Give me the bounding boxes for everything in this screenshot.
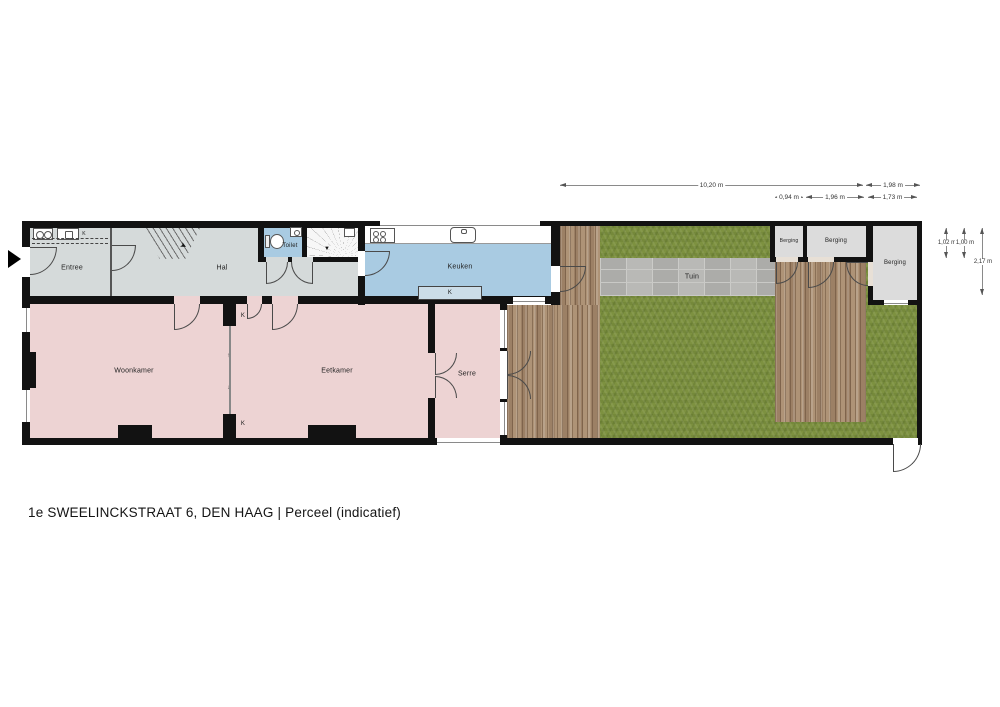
opening-entry [22, 247, 30, 277]
label-entree: Entree [61, 265, 83, 272]
label-serre: Serre [458, 371, 476, 378]
dimension-vertical-2: 1,00 m [964, 228, 965, 258]
label-berging-middle: Berging [825, 238, 847, 244]
dimension-label: 1,96 m [823, 194, 847, 201]
label-closet-ensuite-top: K [241, 313, 245, 319]
wall-toilet-left [258, 221, 264, 262]
wall-berging-divider [803, 226, 807, 257]
dimension-label: 1,73 m [881, 194, 905, 201]
entrance-arrow-marker [8, 250, 21, 268]
opening-eetkamer-serre [428, 353, 435, 398]
plan-title: 1e SWEELINCKSTRAAT 6, DEN HAAG | Perceel… [28, 505, 401, 520]
wall-berging-left-outer [770, 221, 775, 262]
opening-hal-eetkamer-2 [272, 296, 298, 304]
ensuite-closet-top-wall [223, 304, 236, 326]
dashed-overhang-line [32, 238, 108, 244]
ensuite-sliding-doors [229, 326, 231, 414]
dimension-berging-right-width: 1,73 m [868, 197, 917, 198]
door-garden-gate [893, 444, 921, 472]
window-berging-right [884, 300, 908, 305]
dimension-vertical-1: 1,02 m [946, 228, 947, 258]
dimension-label: 10,20 m [698, 182, 726, 189]
opening-hal-woonkamer [174, 296, 200, 304]
label-closet-keuken: K [448, 290, 452, 296]
dimension-berging-left-width: 0,94 m [775, 197, 803, 198]
window-woonkamer-1 [22, 308, 30, 332]
floorplan-canvas: ➤ ▼ ↑ ↓ Entree Hal Toilet Keuken [0, 0, 1000, 707]
toilet-sink-icon [290, 227, 302, 237]
ensuite-closet-bottom-wall [223, 414, 236, 438]
window-woonkamer-2 [22, 390, 30, 422]
wall-toilet-right [302, 226, 307, 257]
window-keuken-south [513, 297, 545, 304]
chimney-woonkamer-left [22, 352, 36, 388]
opening-hal-eetkamer-1 [247, 296, 262, 304]
stove-icon [370, 228, 395, 243]
opening-serre-deck [500, 351, 507, 399]
dimension-berging-middle-width: 1,96 m [806, 197, 864, 198]
label-berging-right: Berging [884, 260, 906, 266]
label-tuin: Tuin [685, 274, 699, 281]
wall-right-keuken [551, 221, 560, 305]
dimension-garden-length: 10,20 m [560, 185, 863, 186]
fixture-stair-cabinet [344, 228, 355, 237]
label-keuken: Keuken [448, 264, 473, 271]
chimney-woonkamer-bottom [118, 425, 152, 438]
label-hal: Hal [216, 265, 227, 272]
deck-left-lower [507, 305, 600, 438]
sink-icon [450, 227, 476, 243]
winder-direction-arrow: ▼ [324, 246, 330, 252]
label-toilet: Toilet [282, 243, 297, 249]
dimension-label: 1,00 m [955, 240, 975, 246]
label-berging-left: Berging [780, 238, 799, 244]
chimney-eetkamer-bottom [308, 425, 356, 438]
window-serre-right-2 [500, 402, 507, 435]
window-serre-right-1 [500, 310, 507, 348]
label-eetkamer: Eetkamer [321, 368, 353, 375]
opening-keuken-deck [551, 266, 560, 292]
window-serre-bottom [437, 438, 500, 445]
dimension-label: 0,94 m [777, 194, 801, 201]
dimension-label: 2,17 m [973, 259, 993, 265]
dimension-vertical-3: 2,17 m [982, 228, 983, 295]
label-closet-ensuite-bottom: K [241, 421, 245, 427]
dimension-label: 1,98 m [881, 182, 905, 189]
label-woonkamer: Woonkamer [114, 368, 153, 375]
dimension-berging-depth: 1,98 m [866, 185, 920, 186]
label-closet-entree: K [82, 231, 86, 237]
fence-right [917, 221, 922, 443]
ensuite-arrow-down: ↓ [227, 385, 230, 391]
opening-hal-keuken [358, 251, 365, 276]
ensuite-arrow-up: ↑ [227, 353, 230, 359]
opening-berging-right [868, 262, 873, 286]
deck-right [775, 262, 866, 422]
